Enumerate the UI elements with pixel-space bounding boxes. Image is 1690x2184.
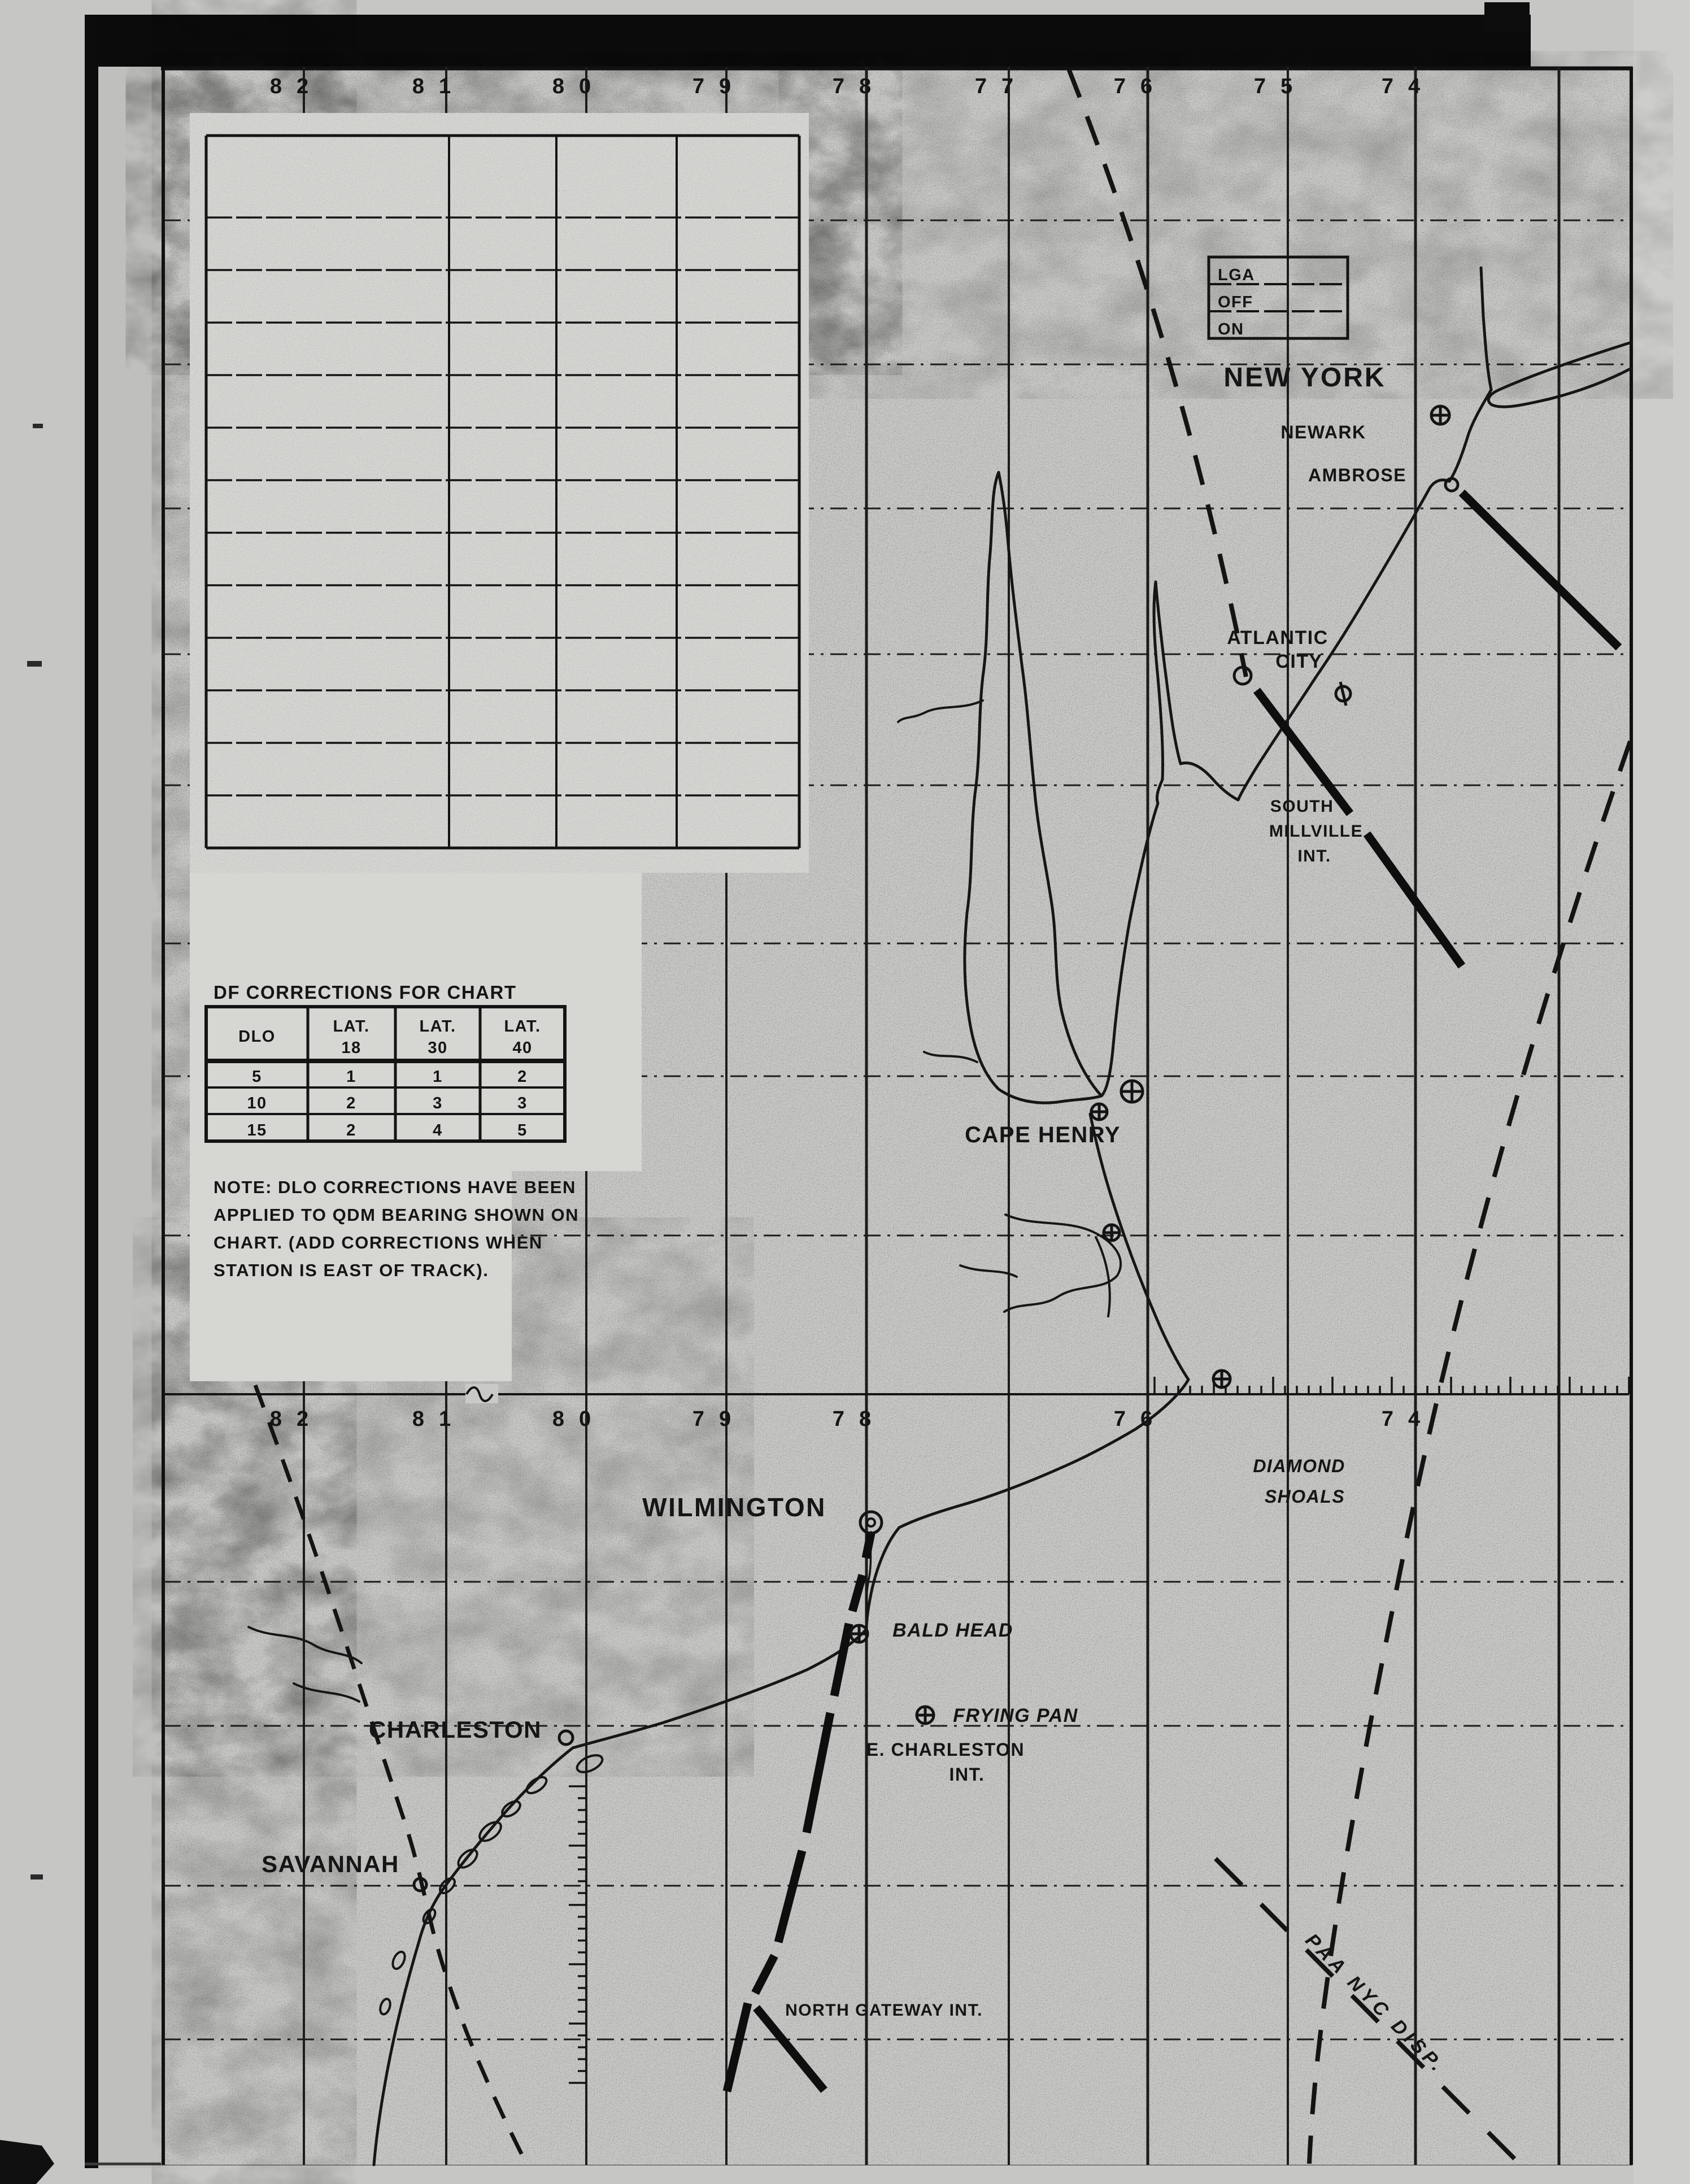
svg-text:2: 2 [346, 1121, 356, 1139]
label-atlantic-city-1: ATLANTIC [1227, 627, 1328, 649]
svg-text:80: 80 [552, 1407, 606, 1431]
note-line-3: CHART. (ADD CORRECTIONS WHEN [214, 1233, 543, 1252]
svg-text:80: 80 [552, 75, 606, 98]
legend-row-lga: LGA [1218, 266, 1255, 284]
note-line-2: APPLIED TO QDM BEARING SHOWN ON [214, 1205, 579, 1225]
label-cape-henry: CAPE HENRY [965, 1123, 1121, 1147]
diamond-shoals-station-icon [1213, 1371, 1230, 1387]
svg-text:76: 76 [1114, 75, 1167, 98]
svg-text:76: 76 [1114, 1407, 1167, 1431]
svg-text:81: 81 [412, 75, 465, 98]
legend-row-on: ON [1218, 320, 1244, 338]
label-savannah: SAVANNAH [262, 1851, 399, 1877]
label-bald-head: BALD HEAD [892, 1620, 1013, 1641]
svg-text:LAT.: LAT. [333, 1017, 369, 1036]
film-top-right-fragment [1484, 2, 1530, 32]
note-line-4: STATION IS EAST OF TRACK). [214, 1260, 489, 1280]
label-wilmington: WILMINGTON [642, 1493, 826, 1522]
svg-text:10: 10 [247, 1094, 267, 1112]
label-south-millville-3: INT. [1297, 847, 1331, 865]
frying-pan-station-icon [917, 1707, 934, 1724]
label-south-millville-1: SOUTH [1270, 797, 1334, 816]
svg-text:77: 77 [975, 75, 1028, 98]
label-e-charleston-1: E. CHARLESTON [866, 1739, 1025, 1760]
svg-text:30: 30 [428, 1039, 447, 1057]
label-charleston: CHARLESTON [369, 1716, 542, 1743]
film-top-edge [85, 15, 1531, 67]
svg-text:LAT.: LAT. [504, 1017, 541, 1036]
label-diamond-shoals-1: DIAMOND [1253, 1456, 1345, 1476]
radio-station-icon [1431, 406, 1449, 424]
label-e-charleston-2: INT. [949, 1764, 985, 1785]
svg-text:79: 79 [692, 1407, 746, 1431]
sound-station-icon [1104, 1225, 1120, 1241]
svg-text:81: 81 [412, 1407, 465, 1431]
note-line-1: NOTE: DLO CORRECTIONS HAVE BEEN [214, 1177, 576, 1197]
label-diamond-shoals-2: SHOALS [1265, 1486, 1345, 1507]
label-north-gateway: NORTH GATEWAY INT. [785, 2001, 983, 2020]
bald-head-station-icon [851, 1625, 868, 1642]
svg-text:1: 1 [433, 1068, 443, 1086]
svg-text:75: 75 [1254, 75, 1307, 98]
df-col-dlo: DLO [238, 1028, 276, 1046]
svg-text:18: 18 [341, 1039, 361, 1057]
svg-text:78: 78 [833, 75, 886, 98]
label-new-york: NEW YORK [1223, 363, 1386, 393]
scanned-aeronautical-chart: DF CORRECTIONS FOR CHART DLO LAT. 18 LAT… [0, 0, 1690, 2184]
label-south-millville-2: MILLVILLE [1269, 822, 1363, 841]
svg-text:2: 2 [517, 1068, 528, 1086]
svg-text:5: 5 [517, 1121, 528, 1139]
svg-text:5: 5 [252, 1068, 262, 1086]
svg-text:4: 4 [433, 1121, 443, 1139]
svg-text:1: 1 [346, 1068, 356, 1086]
top-longitude-labels: 82 81 80 79 78 77 76 75 74 [270, 75, 1435, 98]
label-ambrose: AMBROSE [1308, 465, 1406, 485]
svg-text:15: 15 [247, 1121, 267, 1139]
svg-text:40: 40 [512, 1039, 532, 1057]
svg-text:3: 3 [517, 1094, 528, 1112]
svg-text:79: 79 [692, 75, 746, 98]
svg-text:82: 82 [270, 75, 323, 98]
label-newark: NEWARK [1280, 422, 1366, 442]
film-left-edge [85, 15, 98, 2168]
label-atlantic-city-2: CITY [1275, 651, 1322, 672]
label-frying-pan: FRYING PAN [953, 1705, 1078, 1726]
legend-row-off: OFF [1218, 293, 1253, 311]
svg-text:74: 74 [1382, 75, 1435, 98]
cape-charles-station-icon [1121, 1081, 1143, 1102]
svg-text:74: 74 [1382, 1407, 1435, 1431]
svg-text:LAT.: LAT. [419, 1017, 456, 1036]
df-table-title: DF CORRECTIONS FOR CHART [214, 982, 516, 1003]
cape-henry-station-icon [1091, 1104, 1107, 1120]
svg-text:78: 78 [833, 1407, 886, 1431]
svg-text:2: 2 [346, 1094, 356, 1112]
svg-text:3: 3 [433, 1094, 443, 1112]
svg-text:82: 82 [270, 1407, 323, 1431]
